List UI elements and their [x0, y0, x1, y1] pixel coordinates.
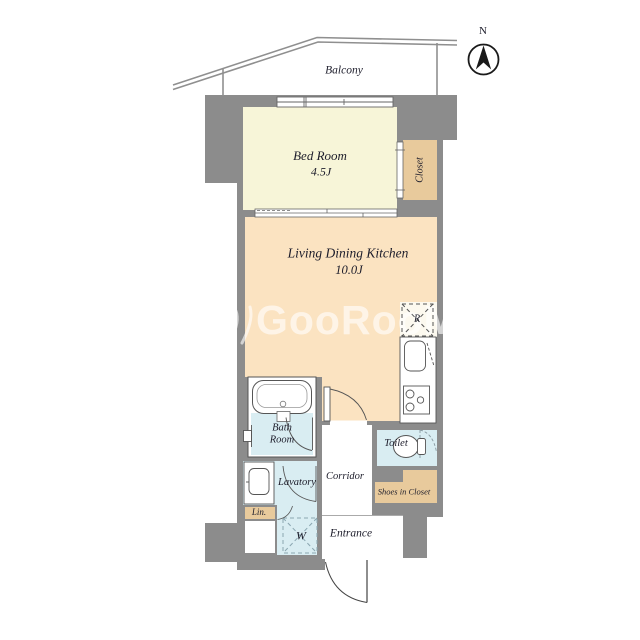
corridor-label: Corridor: [326, 471, 364, 483]
bathroom-label-line2: Room: [270, 434, 295, 446]
balcony-label: Balcony: [325, 65, 363, 78]
bathroom-label-line1: Bath: [270, 422, 295, 434]
ldk-size: 10.0J: [335, 264, 362, 278]
entrance-door-opening: [325, 555, 367, 572]
linen-label: Lin.: [252, 508, 266, 518]
ldk-floor-mid: [322, 377, 400, 421]
floor-plan: GooRooM: [0, 0, 640, 640]
shoes-closet-upper: [403, 470, 437, 482]
bathroom-label: Bath Room: [270, 422, 295, 445]
wall-top-left: [205, 95, 243, 183]
bedroom-size: 4.5J: [311, 165, 331, 178]
compass-label: N: [479, 25, 487, 37]
entrance-label: Entrance: [330, 528, 372, 541]
wall-notch-bottom-right: [427, 517, 443, 558]
wall-bottom: [237, 555, 325, 570]
shoes-closet-label: Shoes in Closet: [378, 487, 430, 496]
compass-icon: [469, 45, 499, 75]
ldk-floor-lower: [245, 302, 400, 377]
bedroom-label: Bed Room: [293, 149, 347, 163]
washer-label: W: [296, 529, 306, 542]
refrigerator-label: R: [414, 314, 420, 325]
below-linen-floor: [245, 521, 275, 553]
wall-top-right: [443, 95, 457, 140]
lavatory-label: Lavatory: [278, 477, 316, 489]
corridor-floor: [322, 425, 372, 515]
closet-label: Closet: [415, 157, 426, 183]
balcony-railing: [173, 38, 457, 97]
ldk-label: Living Dining Kitchen: [288, 247, 409, 262]
toilet-label: Toilet: [384, 438, 408, 450]
